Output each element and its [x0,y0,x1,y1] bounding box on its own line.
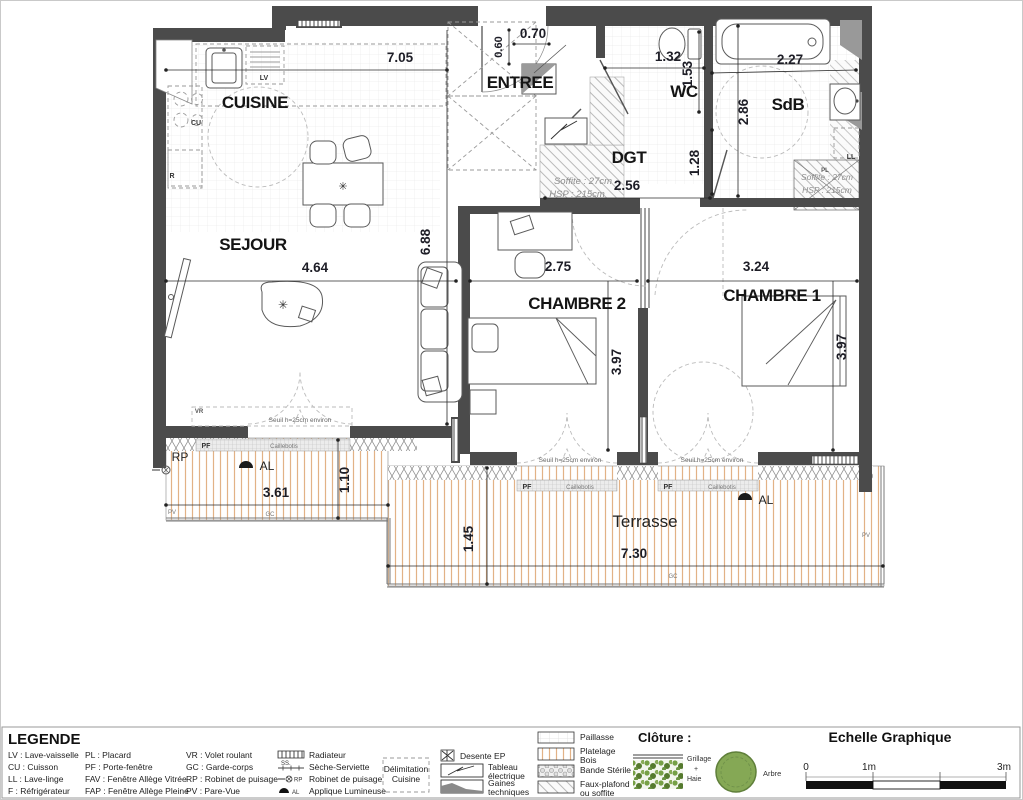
dim-dgt-h: 1.28 [687,149,702,176]
legend-item: ou soffite [580,788,615,798]
legend-item: Radiateur [309,750,346,760]
tableau-icon [441,764,483,777]
room-label-cuisine: CUISINE [222,93,288,112]
dim-sejour-h: 6.88 [418,228,433,255]
tag-pf: PF [664,484,674,491]
legend-item: Arbre [763,769,781,778]
sofa [418,262,462,402]
scale-title: Echelle Graphique [829,729,952,745]
rp-icon-label: RP [294,778,302,784]
note-seuil: Seuil h=25cm environ [539,457,602,464]
note-hsp-sdb: HSP : 215cm [802,185,852,195]
tag-cu: CU [191,120,201,127]
note-caillebotis: Caillebotis [708,485,736,491]
legend-item: FAV : Fenêtre Allège Vitrée [85,774,187,784]
room-label-sdb: SdB [772,95,805,114]
legend-item: Robinet de puisage [309,774,383,784]
room-label-chambre2: CHAMBRE 2 [528,294,625,313]
note-caillebotis: Caillebotis [270,444,298,450]
bande-sterile-icon [538,765,574,777]
dim-ch2-h: 3.97 [609,349,624,375]
legend-item: Desente EP [460,751,506,761]
floor-plan-sheet: ✳ ✳ [0,0,1023,800]
nightstand [470,390,496,414]
legend-item: Délimitation [384,764,429,774]
tag-ll: LL [847,154,856,161]
legend-item: + [694,766,698,773]
legend-item: RP : Robinet de puisage [186,774,278,784]
platelage-icon [538,748,574,760]
dim-sdb-w: 2.27 [777,52,803,67]
haie-icon [633,760,683,789]
legend-item: Bois [580,755,597,765]
scale-label: 3m [997,762,1011,773]
faux-plafond-icon [538,781,574,793]
dim-sejour-w: 4.64 [302,260,329,275]
dim-ch1-w: 3.24 [743,259,770,274]
dim-terr-h: 1.45 [461,525,476,552]
desk [498,212,572,250]
scale-label: 0 [803,762,809,773]
legend: LEGENDE LV : Lave-vaisselle CU : Cuisson… [2,727,1020,798]
bathtub [716,19,830,64]
legend-item: Cuisine [392,774,421,784]
legend-item: LV : Lave-vaisselle [8,750,79,760]
note-seuil: Seuil h=25cm environ [269,417,332,424]
note-caillebotis: Caillebotis [566,485,594,491]
tableau-electrique [545,118,587,144]
tag-lv: LV [260,75,269,82]
note-soffite-sdb: Soffite : 27cm [801,172,853,182]
tag-pf: PF [523,484,533,491]
tag-pv: PV [862,533,870,539]
desk-chair [515,252,545,278]
dim-terr-left-w: 3.61 [263,485,290,500]
legend-title: LEGENDE [8,731,81,748]
tag-al: AL [759,493,774,507]
dim-wc-h: 1.53 [680,60,695,87]
dim-wc-w: 1.32 [655,49,681,64]
room-label-sejour: SEJOUR [219,235,287,254]
legend-item: FAP : Fenêtre Allège Pleine [85,786,189,796]
plant-icon: ✳ [278,298,288,312]
legend-item: GC : Garde-corps [186,762,253,772]
legend-item: PL : Placard [85,750,131,760]
chair [310,141,336,164]
dim-entree-070: 0.70 [520,26,546,41]
legend-item: Grillage [687,756,711,763]
legend-item: VR : Volet roulant [186,750,253,760]
dim-entree-060: 0.60 [493,36,505,57]
dim-terr-w: 7.30 [621,546,647,561]
radiator-icon [278,751,304,758]
tag-al: AL [260,459,275,473]
scale-label: 1m [862,762,876,773]
legend-item: CU : Cuisson [8,762,58,772]
room-label-dgt: DGT [612,148,648,167]
legend-item: LL : Lave-linge [8,774,64,784]
dim-dgt-w: 2.56 [614,178,641,193]
note-seuil: Seuil h=25cm environ [681,457,744,464]
radiator [812,456,858,464]
room-label-entree: ENTREE [487,73,554,92]
note-hsp-dgt: HSP : 215cm [549,189,605,200]
tag-pv: PV [168,510,176,516]
kitchen-sink [206,48,242,88]
coffee-table [261,281,322,326]
tag-rp: RP [172,450,189,464]
dim-sdb-h: 2.86 [736,98,751,125]
dim-ch2-w: 2.75 [545,259,572,274]
legend-item: F : Réfrigérateur [8,786,70,796]
floor-plan-svg: ✳ ✳ [0,0,1023,800]
legend-item: PF : Porte-fenêtre [85,762,153,772]
legend-item: techniques [488,787,529,797]
arbre-icon [716,752,756,792]
tag-vr: VR [195,409,204,415]
ss-icon: SS. [281,761,291,767]
note-soffite-dgt: Soffite : 27cm [554,176,612,187]
legend-item: Paillasse [580,732,614,742]
paillasse-icon [538,732,574,743]
legend-item: PV : Pare-Vue [186,786,240,796]
bed-ch2 [468,318,596,384]
radiator [640,417,647,463]
radiator [453,419,459,461]
room-label-chambre1: CHAMBRE 1 [723,286,820,305]
room-label-terrasse: Terrasse [612,512,677,531]
cloture-title: Clôture : [638,730,691,745]
tag-gc: GC [669,574,679,580]
tag-fridge: R [169,173,174,180]
dim-ch1-h: 3.97 [834,334,849,360]
legend-item: Haie [687,776,702,783]
legend-item: Sèche-Serviette [309,762,370,772]
al-icon-label: AL [292,790,300,796]
dim-terr-left-h: 1.10 [337,467,352,493]
scale-bar [806,781,873,789]
tag-pf: PF [202,443,212,450]
dim-top-width: 7.05 [387,50,414,65]
plant-icon: ✳ [338,181,347,193]
legend-item: Bande Stérile [580,765,631,775]
legend-item: Applique Lumineuse [309,786,386,796]
tag-gc: GC [266,512,276,518]
